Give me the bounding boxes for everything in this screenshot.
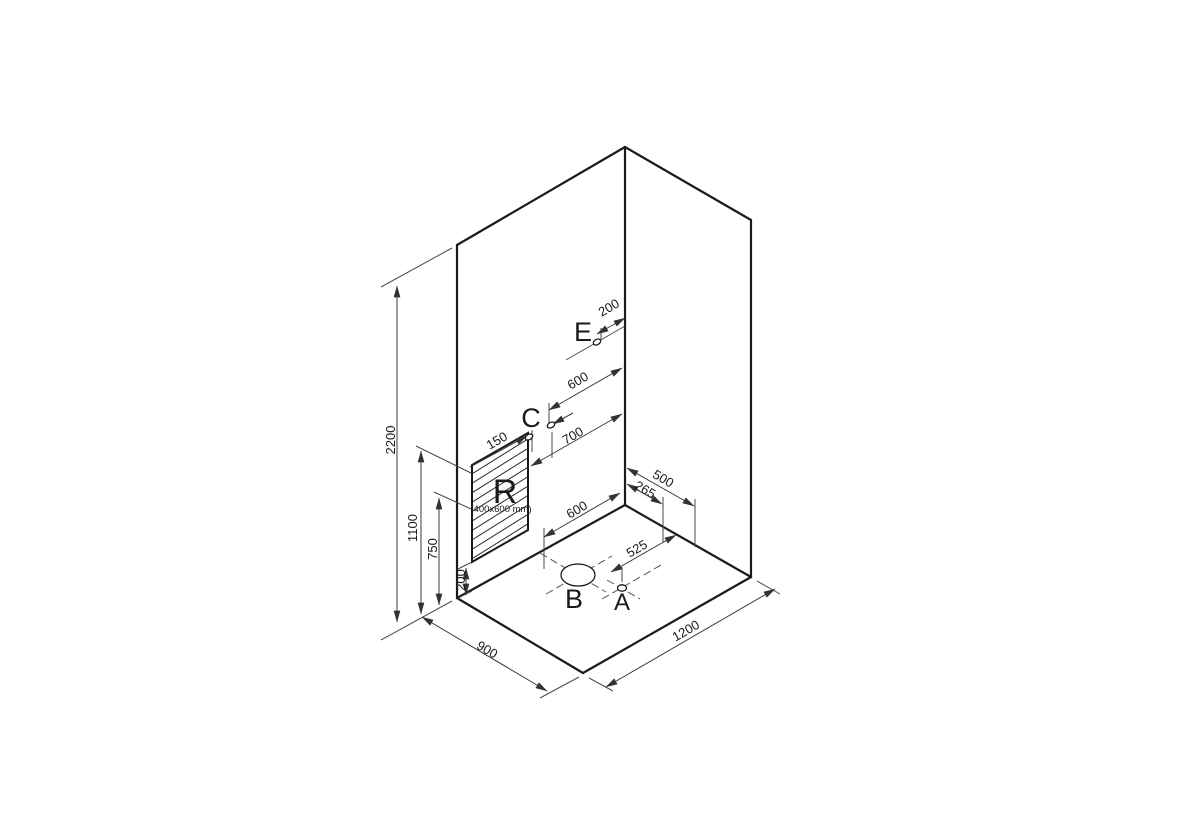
dim-label-2200: 2200 — [383, 426, 398, 455]
dim-label-750: 750 — [425, 538, 440, 560]
dimension-labels: 2200 1100 750 200 150 600 700 200 600 50… — [383, 296, 702, 662]
dim-label-200-vertical: 200 — [453, 569, 468, 591]
dim-line-200-e — [597, 318, 625, 334]
extension-line — [416, 446, 471, 473]
point-a-label: A — [614, 589, 630, 616]
point-c-label: C — [521, 403, 541, 433]
dim-label-1100: 1100 — [405, 514, 420, 542]
dim-label-600-upper: 600 — [565, 369, 591, 393]
dim-label-600-lower: 600 — [564, 498, 590, 522]
recess-size-label: (400x600 mm) — [470, 504, 531, 515]
floor-front-right-edge — [583, 577, 751, 673]
extension-line — [757, 581, 780, 594]
dim-label-200-e: 200 — [596, 296, 622, 320]
left-wall-top-edge — [457, 147, 625, 245]
extension-line — [381, 601, 452, 640]
technical-drawing: E C B A R (400x600 mm) 2200 1100 750 200… — [0, 0, 1190, 840]
point-e-marker — [592, 338, 602, 347]
enclosure-edges — [457, 147, 751, 673]
extension-line — [540, 677, 579, 698]
extension-lines — [381, 248, 780, 698]
extension-line — [381, 248, 452, 287]
point-b-drain-marker — [561, 564, 595, 586]
right-wall-top-edge — [625, 147, 751, 220]
dim-label-525: 525 — [624, 537, 650, 561]
dim-label-700: 700 — [560, 424, 586, 448]
dim-line-1200 — [606, 589, 775, 687]
dim-label-900: 900 — [474, 638, 500, 662]
point-b-label: B — [565, 584, 583, 614]
centerlines — [540, 553, 661, 599]
extension-line — [458, 562, 472, 569]
point-c-marker — [546, 421, 556, 430]
arrow-pointer-line — [553, 413, 573, 424]
extension-line — [434, 492, 471, 509]
point-e-label: E — [574, 317, 592, 347]
extension-line — [458, 591, 472, 598]
drawing-canvas: E C B A R (400x600 mm) 2200 1100 750 200… — [0, 0, 1190, 840]
